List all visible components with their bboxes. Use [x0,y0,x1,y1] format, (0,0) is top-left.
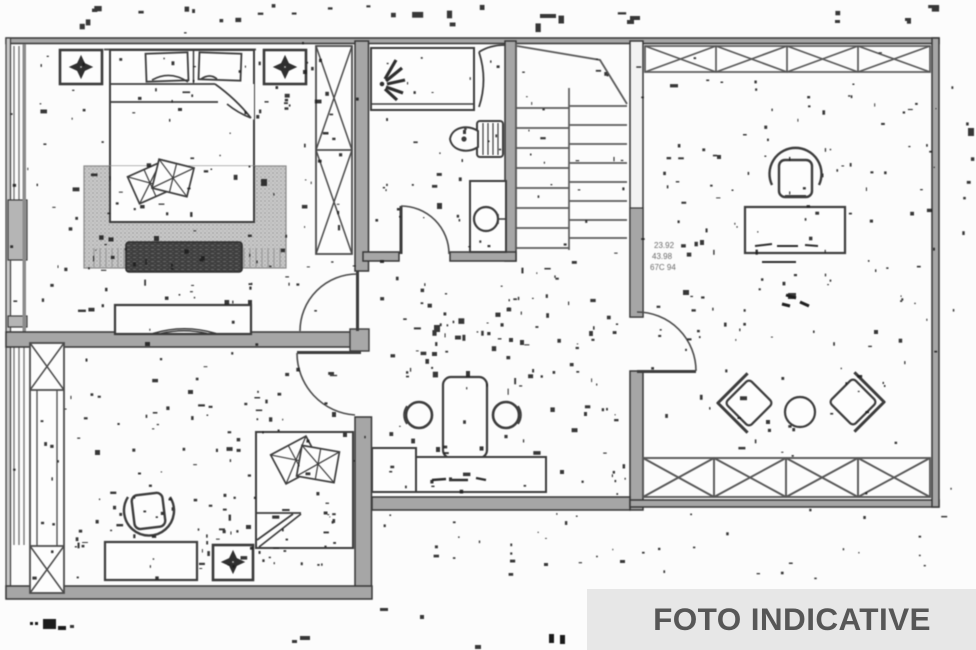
svg-text:67C 94: 67C 94 [650,263,676,272]
svg-text:43.98: 43.98 [652,252,673,261]
svg-text:23.92: 23.92 [654,241,675,250]
